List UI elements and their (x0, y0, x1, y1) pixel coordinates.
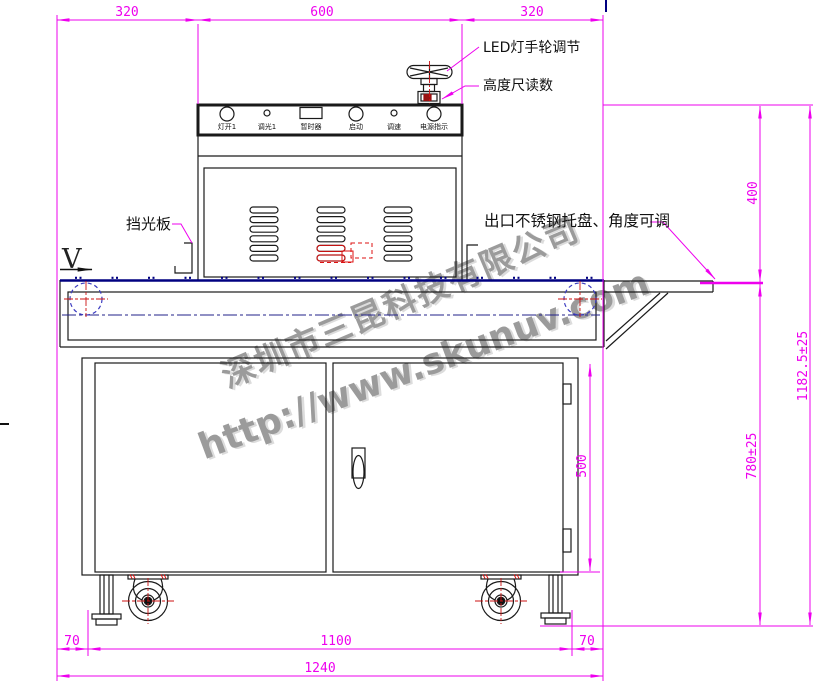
dim-bottom-right: 70 (579, 634, 595, 649)
panel-label-timer: 暂时器 (301, 122, 322, 131)
leader-light-shield (172, 224, 192, 243)
oven-housing (198, 135, 462, 281)
dim-cabinet-height: 500 (575, 454, 590, 477)
panel-label-lamp-switch: 灯开1 (218, 122, 236, 131)
label-height-gauge: 高度尺读数 (483, 77, 553, 94)
dim-bottom-total: 1240 (304, 661, 335, 676)
hinge-bottom-icon (563, 529, 571, 552)
handwheel-assembly (407, 61, 452, 106)
caster-right (475, 575, 527, 625)
uv-machine-front-view-drawing: 深圳市三昆科技有限公司 深圳市三昆科技有限公司 http://www.skunu… (0, 0, 830, 693)
label-led-handwheel: LED灯手轮调节 (483, 40, 580, 56)
dim-bottom-mid: 1100 (320, 634, 351, 649)
timer-display-icon (300, 108, 322, 119)
panel-label-power-indicator: 电源指示 (420, 122, 448, 131)
engineering-drawing-canvas: 深圳市三昆科技有限公司 深圳市三昆科技有限公司 http://www.skunu… (0, 0, 830, 693)
label-belt-direction: V (61, 244, 82, 275)
power-indicator-icon (427, 107, 441, 121)
start-button-icon (349, 107, 363, 121)
dim-right-upper: 400 (746, 181, 761, 204)
louver-group-left (250, 207, 278, 261)
panel-label-dimmer: 调光1 (258, 122, 276, 131)
louver-group-mid (317, 207, 345, 261)
speed-knob-icon (391, 110, 397, 116)
dim-top-right: 320 (520, 5, 543, 20)
watermark: 深圳市三昆科技有限公司 深圳市三昆科技有限公司 http://www.skunu… (193, 209, 657, 469)
dim-right-lower: 780±25 (745, 433, 760, 480)
leader-led-handwheel (447, 47, 479, 71)
leader-outlet-tray (650, 222, 715, 279)
dimmer-knob-icon (264, 110, 270, 116)
lamp-switch-button-icon (220, 107, 234, 121)
label-outlet-tray: 出口不锈钢托盘、角度可调 (484, 211, 670, 230)
dim-top-left: 320 (115, 5, 138, 20)
vent-louvers (250, 207, 412, 261)
caster-left (122, 575, 174, 625)
leader-height-gauge (442, 86, 479, 99)
panel-label-speed: 调速 (387, 122, 401, 131)
dim-right-total: 1182.5±25 (796, 331, 811, 401)
hinge-top-icon (563, 384, 571, 404)
dim-top-mid: 600 (310, 5, 333, 20)
louver-group-right (384, 207, 412, 261)
light-shield-bracket-left (175, 243, 192, 273)
panel-label-start: 启动 (349, 122, 363, 131)
label-light-shield: 挡光板 (126, 215, 171, 233)
panel-labels: 灯开1 调光1 暂时器 启动 调速 电源指示 (218, 122, 448, 131)
dim-bottom-left: 70 (64, 634, 80, 649)
